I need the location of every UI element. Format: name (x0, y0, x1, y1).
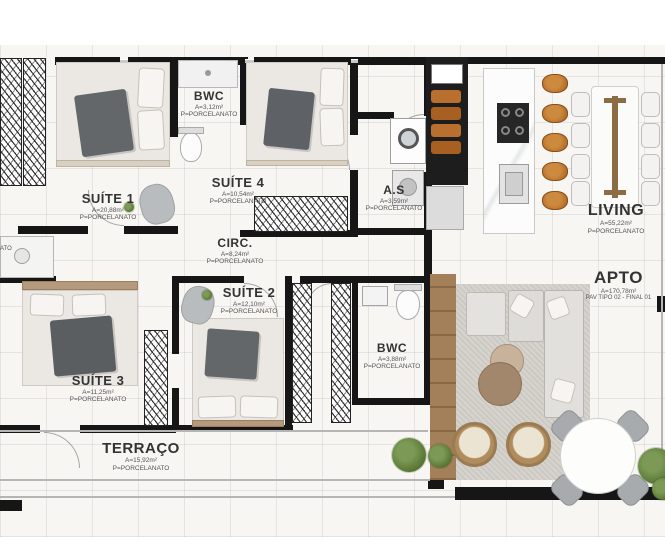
room-name: SUÍTE 1 (38, 192, 178, 207)
toilet (180, 132, 202, 162)
room-floor: P=PORCELANATO (208, 308, 290, 315)
room-area: A=20,88m² (38, 207, 178, 214)
dining-chair (641, 123, 660, 148)
window (351, 59, 358, 63)
wall-segment (18, 226, 88, 234)
room-label-suite2: SUÍTE 2 A=12,10m² P=PORCELANATO (208, 286, 290, 316)
plant (428, 444, 452, 468)
room-label-suite1: SUÍTE 1 A=20,88m² P=PORCELANATO (38, 192, 178, 222)
room-name: LIVING (568, 202, 664, 220)
room-label-as: A.S A=3,59m² P=PORCELANATO (362, 184, 426, 213)
room-name: BWC (362, 342, 422, 356)
room-floor: P=PORCELANATO (38, 214, 178, 221)
room-area: A=8,24m² (196, 251, 274, 258)
coffee-table (478, 362, 522, 406)
bar-stool (542, 74, 568, 93)
dining-chair (641, 92, 660, 117)
room-area: A=55,22m² (568, 220, 664, 227)
pillow (198, 395, 237, 418)
terrace-edge (0, 479, 430, 481)
room-label-terraco: TERRAÇO A=15,92m² P=PORCELANATO (82, 440, 200, 472)
table-runner-bar (604, 98, 626, 103)
table-runner (612, 96, 618, 198)
toilet (396, 290, 420, 320)
room-label-bwc1: BWC A=3,12m² P=PORCELANATO (176, 90, 242, 119)
pantry-shelf-item (431, 107, 461, 120)
toilet-tank (178, 127, 204, 134)
room-floor: P=PORCELANATO (362, 363, 422, 370)
floor-plan: SUÍTE 1 A=20,88m² P=PORCELANATO BWC A=3,… (0, 0, 665, 555)
bar-stool (542, 104, 568, 123)
wardrobe-suite2 (292, 283, 312, 423)
wall-segment (124, 226, 178, 234)
room-name: SUÍTE 4 (192, 176, 284, 191)
wall-segment (178, 276, 244, 283)
sink-basin (505, 172, 523, 196)
dining-chair (571, 123, 590, 148)
round-table (560, 418, 636, 494)
wall-segment (428, 479, 444, 489)
room-label-suite3: SUÍTE 3 A=11,25m² P=PORCELANATO (42, 374, 154, 404)
fridge (431, 64, 463, 84)
bar-stool (542, 162, 568, 181)
room-area: A=15,92m² (82, 457, 200, 464)
wall-segment (300, 276, 432, 283)
wardrobe-suite1 (0, 58, 22, 186)
burner (501, 126, 510, 135)
pillow (240, 395, 279, 418)
dining-chair (571, 92, 590, 117)
kitchen-island (483, 68, 535, 234)
blanket (263, 88, 315, 150)
room-label-bwc2: BWC A=3,88m² P=PORCELANATO (362, 342, 422, 371)
room-area: A=3,12m² (176, 104, 242, 111)
pillow (319, 68, 344, 107)
room-name: TERRAÇO (82, 440, 200, 457)
wardrobe-suite2 (331, 283, 351, 423)
room-label-living: LIVING A=55,22m² P=PORCELANATO (568, 202, 664, 235)
shower-drain (205, 70, 211, 76)
wicker-chair (452, 422, 497, 467)
dining-chair (571, 154, 590, 179)
terrace-edge (0, 496, 455, 498)
terrace-rail (0, 430, 428, 432)
bed-bench (56, 160, 170, 167)
room-floor: P=PORCELANATO (82, 465, 200, 472)
headboard (22, 281, 138, 290)
pillow (319, 108, 344, 147)
wall-segment (358, 57, 426, 65)
wall-segment (352, 398, 432, 405)
room-floor: P=PORCELANATO (362, 205, 426, 212)
blanket (204, 328, 259, 380)
room-floor: P=PORCELANATO (176, 111, 242, 118)
pillow (137, 67, 165, 108)
room-area: A=12,10m² (208, 301, 290, 308)
room-area: A=3,59m² (362, 198, 426, 205)
room-name: CIRC. (196, 237, 274, 251)
room-label-suite4: SUÍTE 4 A=10,54m² P=PORCELANATO (192, 176, 284, 206)
pillow (72, 293, 107, 316)
kitchen-cabinet (426, 186, 464, 230)
wall-segment (0, 500, 22, 511)
room-name: SUÍTE 3 (42, 374, 154, 389)
room-name: APTO (572, 268, 665, 288)
wardrobe-suite1 (23, 58, 46, 186)
burner (501, 108, 510, 117)
sofa-ottoman (466, 292, 506, 336)
room-floor: P=PORCELANATO (192, 198, 284, 205)
room-label-circ: CIRC. A=8,24m² P=PORCELANATO (196, 237, 274, 266)
room-name: BWC (176, 90, 242, 104)
pantry-shelf-item (431, 124, 461, 137)
plant (392, 438, 426, 472)
blanket (74, 89, 134, 158)
room-label-apto: APTO A=170,78m² PAV TIPO 02 - FINAL 01 (572, 268, 665, 302)
wall-segment (350, 57, 358, 135)
wall-segment (352, 283, 358, 398)
pantry-shelf-item (431, 90, 461, 103)
room-floor: P=PORCELANATO (42, 396, 154, 403)
burner (515, 126, 524, 135)
room-floor: P=PORCELANATO (568, 228, 664, 235)
room-area: A=3,88m² (362, 356, 422, 363)
counter-sink (14, 248, 30, 264)
wall-segment (172, 276, 179, 354)
bathroom-sink (362, 286, 388, 306)
wall-segment (358, 112, 394, 119)
pillow (30, 293, 65, 316)
pantry-shelf-item (431, 141, 461, 154)
room-area: A=11,25m² (42, 389, 154, 396)
bed-bench (246, 160, 348, 166)
table-runner-bar (604, 190, 626, 195)
pillow (137, 109, 165, 150)
room-label-cutoff: ATO (0, 246, 16, 253)
wall-segment (358, 228, 432, 235)
bar-stool (542, 133, 568, 152)
dining-chair (641, 154, 660, 179)
wicker-chair (506, 422, 551, 467)
washer-drum (398, 128, 419, 149)
bar-stool (542, 191, 568, 210)
headboard (192, 420, 284, 427)
room-floor-partial: ATO (0, 246, 16, 253)
burner (515, 108, 524, 117)
room-name: A.S (362, 184, 426, 198)
room-area: A=10,54m² (192, 191, 284, 198)
blanket (50, 315, 117, 376)
room-name: SUÍTE 2 (208, 286, 290, 301)
wall-segment (350, 170, 358, 234)
room-floor: PAV TIPO 02 - FINAL 01 (572, 295, 665, 302)
room-floor: P=PORCELANATO (196, 258, 274, 265)
room-area: A=170,78m² (572, 288, 665, 295)
